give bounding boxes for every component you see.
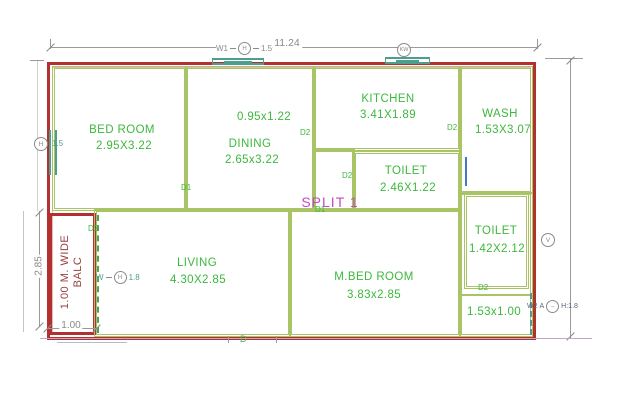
door-tag-d2-toilet: D2: [478, 283, 488, 292]
kw-bubble-icon: KW: [397, 43, 411, 57]
wash-size: 1.53X3.07: [475, 124, 531, 136]
step-line: [57, 342, 127, 343]
toilet-top-size: 2.46X1.22: [380, 182, 436, 194]
dim-top-width: 11.24: [272, 37, 302, 49]
corner-size: 1.53x1.00: [467, 306, 521, 318]
dash-bubble-icon: –: [546, 300, 559, 313]
toilet-bottom-size: 1.42X2.12: [469, 243, 525, 255]
door-tag-d2-kitchen: D2: [300, 128, 310, 137]
dim-ext-left-tick: [30, 60, 44, 61]
living-size: 4.30X2.85: [170, 274, 226, 286]
floor-plan-canvas: BED ROOM 2.95X3.22 0.95x1.22 DINING 2.65…: [0, 0, 637, 404]
split-label: SPLIT 1: [301, 194, 358, 210]
window-left-inner-icon: [55, 130, 57, 175]
window-top-1-icon: [212, 58, 264, 65]
h-bubble-icon: H: [34, 137, 48, 151]
dim-ext-left-upper: [37, 60, 38, 211]
living-label: LIVING: [177, 257, 217, 269]
section-line: [40, 338, 592, 339]
room-toilet-top: [353, 151, 461, 211]
mbedroom-size: 3.83x2.85: [347, 289, 401, 301]
bedroom-label: BED ROOM: [89, 124, 155, 136]
dining-size: 2.65x3.22: [225, 154, 279, 166]
h-bubble-icon: H: [114, 271, 127, 284]
dim-line-right: [570, 58, 571, 338]
h-bubble-icon: H: [238, 42, 251, 55]
marker-left-window-height: 1.5: [52, 139, 63, 148]
dining-label: DINING: [229, 138, 272, 150]
kitchen-label: KITCHEN: [361, 93, 414, 105]
balcony-label: 1.00 M. WIDE BALC: [59, 235, 85, 309]
window-left-outer-icon: [49, 130, 51, 175]
v-bubble-icon: V: [541, 233, 555, 247]
toilet-window-icon: [465, 157, 467, 186]
toilet-top-label: TOILET: [385, 165, 427, 177]
door-tag-d1-split: D1: [315, 205, 325, 214]
door-tick: [228, 336, 229, 343]
dim-living-depth: 2.85: [34, 254, 45, 277]
toilet-bottom-label: TOILET: [475, 225, 517, 237]
door-tag-d-bottom: D: [240, 334, 247, 344]
door-tag-d2-corridor: D2: [342, 171, 352, 180]
room-bedroom: [52, 66, 187, 211]
passage-size: 0.95x1.22: [237, 111, 291, 123]
door-tag-d2-balcony: D2: [88, 224, 98, 233]
dim-ext-far-left: [23, 211, 24, 332]
dim-ext-right-top: [545, 58, 583, 59]
bedroom-size: 2.95X3.22: [96, 140, 152, 152]
room-toilet-bottom: [464, 194, 529, 289]
marker-corner-window: W2 A – H:1.8: [527, 300, 578, 313]
door-tick: [276, 336, 277, 343]
window-top-2-icon: [385, 57, 430, 64]
marker-top-window: W1 H 1.5: [216, 42, 272, 55]
mbedroom-label: M.BED ROOM: [334, 271, 413, 283]
dim-balcony-width: 1.00: [59, 320, 82, 331]
wash-label: WASH: [482, 108, 518, 120]
door-tag-d1-bedroom: D1: [181, 183, 191, 192]
door-tag-d2-wash: D2: [447, 123, 457, 132]
wall-corner-area: [460, 294, 532, 296]
marker-balcony-window: W H 1.8: [96, 271, 140, 284]
kitchen-size: 3.41X1.89: [360, 109, 416, 121]
